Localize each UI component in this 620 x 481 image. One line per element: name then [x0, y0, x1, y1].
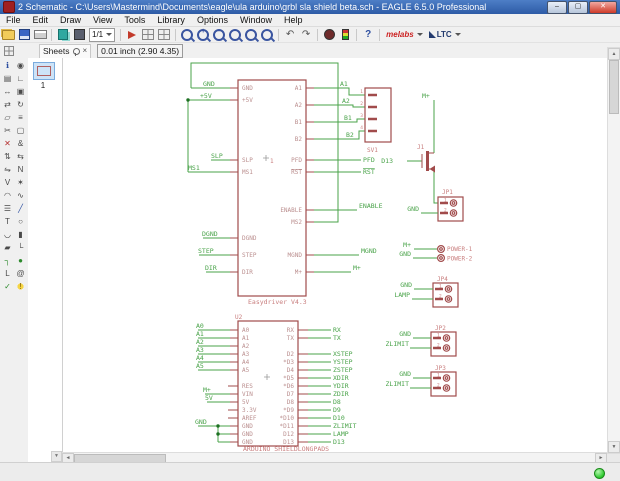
replace-tool[interactable]: ⇆ [14, 150, 27, 163]
net-label: A2 [196, 338, 204, 346]
maximize-button[interactable]: ▢ [568, 1, 588, 14]
net-label: D13 [333, 438, 345, 446]
jp4-connector[interactable]: GND LAMP JP4 1 2 [394, 276, 458, 307]
net-label: GND [407, 205, 419, 213]
pin-name: A1 [295, 85, 303, 92]
menu-library[interactable]: Library [151, 15, 191, 25]
eagle-icon [3, 1, 15, 13]
pin-name: D12 [283, 431, 294, 438]
undo-button[interactable]: ↶ [282, 28, 298, 42]
menu-edit[interactable]: Edit [27, 15, 55, 25]
net-label: GND [399, 330, 411, 338]
pin-name: *D11 [280, 423, 295, 430]
pin-name: SLP [242, 157, 253, 164]
pin-number: 1 [437, 373, 440, 379]
attribute-tool[interactable]: @ [14, 267, 27, 280]
title-bar: 2 Schematic - C:\Users\Mastermind\Docume… [0, 0, 620, 14]
connector-ref: JP1 [442, 189, 453, 196]
pin-number: 2 [439, 294, 442, 300]
mosfet-j1[interactable]: M+ J1 D13 [381, 92, 438, 203]
net-label: +5V [200, 92, 212, 100]
net-label: MGND [361, 247, 377, 255]
pin-name: A1 [242, 335, 250, 342]
script-button[interactable] [124, 28, 140, 42]
pin-name: GND [242, 85, 253, 92]
pin-number: 4 [360, 125, 363, 131]
net-label: A3 [196, 346, 204, 354]
pin-name: VIN [242, 391, 253, 398]
net-label: XDIR [333, 374, 349, 382]
net-label: A0 [196, 322, 204, 330]
net-label: ZLIMIT [333, 422, 357, 430]
status-indicator [594, 468, 605, 479]
invoke-tool[interactable]: ☰ [1, 202, 14, 215]
pin-name: D8 [287, 399, 295, 406]
easydriver-value: Easydriver V4.3 [248, 298, 307, 306]
net-label: YSTEP [333, 358, 353, 366]
melabs-logo: melabs [386, 30, 414, 39]
net-label: A2 [342, 97, 350, 105]
ltc-menu[interactable]: LTC [429, 30, 461, 39]
net-tool[interactable]: ┐ [1, 254, 14, 267]
mark-display-button[interactable] [1, 44, 17, 58]
circle-tool[interactable]: ○ [14, 215, 27, 228]
pin-name: B2 [295, 136, 303, 143]
net-label: GND [399, 250, 411, 258]
net-label: A1 [196, 330, 204, 338]
net-label: DGND [202, 230, 218, 238]
net-label: 5V [205, 394, 213, 402]
menu-options[interactable]: Options [191, 15, 234, 25]
pin-name: GND [242, 423, 253, 430]
pin-name: DGND [242, 235, 257, 242]
mark-tool[interactable]: ∟ [14, 72, 27, 85]
group-tool[interactable]: ▱ [1, 111, 14, 124]
ltc-logo: LTC [437, 30, 452, 39]
connector-ref: JP3 [435, 365, 446, 372]
stop-icon [324, 29, 335, 40]
net-label: GND [195, 418, 207, 426]
menu-view[interactable]: View [87, 15, 118, 25]
zoom-in-button[interactable]: + [195, 28, 211, 42]
cam-icon [74, 29, 85, 40]
info-tool[interactable]: ℹ [1, 59, 14, 72]
arduino-value: ARDUINO_SHIELDLONGPADS [243, 445, 329, 452]
pin-name: TX [287, 335, 295, 342]
net-label: ZLIMIT [386, 340, 410, 348]
transistor-ref: J1 [417, 144, 425, 151]
net-label: RX [333, 326, 341, 334]
menu-file[interactable]: File [0, 15, 27, 25]
pin-number: 2 [437, 343, 440, 349]
menu-draw[interactable]: Draw [54, 15, 87, 25]
change-tool[interactable]: ≡ [14, 111, 27, 124]
jp1-connector[interactable]: GND JP1 1 2 [407, 189, 463, 221]
zoom-select-icon [245, 29, 257, 41]
flag-icon [128, 31, 136, 39]
pin-number: 2 [444, 208, 447, 214]
sv1-connector[interactable]: 1 2 3 4 SV1 [360, 88, 391, 154]
help-button[interactable]: ? [360, 28, 376, 42]
junction-tool[interactable]: ● [14, 254, 27, 267]
menu-tools[interactable]: Tools [118, 15, 151, 25]
pin-name: D2 [287, 351, 295, 358]
pin-name: B1 [295, 119, 303, 126]
connector-ref: SV1 [367, 147, 378, 154]
net-label: M+ [403, 241, 411, 249]
net-label: M+ [422, 92, 430, 100]
value-tool[interactable]: V [1, 176, 14, 189]
zoom-redraw-icon [229, 29, 241, 41]
component-ref: U2 [235, 314, 243, 321]
pin-name: *D9 [283, 407, 294, 414]
pin-name: D4 [287, 367, 295, 374]
vertical-scrollbar[interactable]: ▲ ▼ [607, 47, 620, 454]
easydriver-marker: 1 [270, 158, 274, 165]
pin-name: MS1 [242, 169, 253, 176]
pin-name: RX [287, 327, 295, 334]
easydriver-component[interactable]: 1 GND +5V SLP MS1 DGND STEP DIR A1 A2 B1… [230, 80, 314, 306]
scroll-down-arrow[interactable]: ▼ [608, 441, 620, 453]
net-label: D8 [333, 398, 341, 406]
smash-tool[interactable]: ✶ [14, 176, 27, 189]
pin-number: 1 [437, 333, 440, 339]
pin-number: 1 [439, 284, 442, 290]
pin-name: MGND [288, 252, 303, 259]
name-tool[interactable]: N [14, 163, 27, 176]
text-tool[interactable]: T [1, 215, 14, 228]
net-label: A4 [196, 354, 204, 362]
net-label: A1 [340, 80, 348, 88]
net-label: A5 [196, 362, 204, 370]
pin-name: A2 [242, 343, 250, 350]
floppy-icon [19, 29, 30, 40]
net-label: ZDIR [333, 390, 349, 398]
coordinate-display: 0.01 inch (2.90 4.35) [97, 44, 183, 58]
pin-number: 1 [444, 198, 447, 204]
pinswap-tool[interactable]: ⇅ [1, 150, 14, 163]
small-grid-icon [4, 46, 14, 56]
cut-tool[interactable]: ✂ [1, 124, 14, 137]
power-connector[interactable]: M+ GND POWER-1 POWER-2 [399, 241, 472, 263]
wire-tool[interactable]: ╱ [14, 202, 27, 215]
rect-tool[interactable]: ▮ [14, 228, 27, 241]
scroll-up-arrow[interactable]: ▲ [608, 48, 620, 60]
pin-name: 3.3V [242, 407, 257, 414]
net-label: STEP [198, 247, 214, 255]
pin-name: AREF [242, 415, 257, 422]
connector-ref: JP4 [437, 276, 448, 283]
connector-ref: JP2 [435, 325, 446, 332]
add-tool[interactable]: & [14, 137, 27, 150]
pin-name: RST [291, 169, 302, 176]
net-label: LAMP [333, 430, 349, 438]
board-sheets-icon [58, 29, 68, 40]
pin-name: STEP [242, 252, 257, 259]
net-label: M+ [353, 264, 361, 272]
pin-name: MS2 [291, 219, 302, 226]
net-label: LAMP [394, 291, 410, 299]
schematic-canvas[interactable]: 1 GND +5V SLP MS1 DGND STEP DIR A1 A2 B1… [62, 58, 608, 452]
zoom-last-icon [261, 29, 273, 41]
pin-name: D7 [287, 391, 295, 398]
jp2-connector[interactable]: GND ZLIMIT JP2 1 2 [386, 325, 456, 356]
layers-icon [158, 29, 170, 40]
sheets-panel: 1 ▼ [28, 58, 63, 462]
net-label: D9 [333, 406, 341, 414]
window-title: 2 Schematic - C:\Users\Mastermind\Docume… [18, 2, 543, 12]
miter-tool[interactable]: ◠ [1, 189, 14, 202]
pin-name: A2 [295, 102, 303, 109]
errors-tool[interactable]: ! [14, 280, 27, 293]
net-label: XSTEP [333, 350, 353, 358]
zoom-in-icon: + [197, 29, 209, 41]
open-button[interactable] [0, 28, 16, 42]
show-tool[interactable]: ◉ [14, 59, 27, 72]
grid-button[interactable] [140, 28, 156, 42]
move-tool[interactable]: ↔ [1, 85, 14, 98]
pin-name: *D3 [283, 359, 294, 366]
display-tool[interactable]: ▤ [1, 72, 14, 85]
net-label: ZLIMIT [386, 380, 410, 388]
erc-tool[interactable]: ✓ [1, 280, 14, 293]
net-label: YDIR [333, 382, 349, 390]
net-label: GND [203, 80, 215, 88]
pad-label: POWER-2 [447, 256, 473, 263]
layers-button[interactable] [156, 28, 172, 42]
pin-name: GND [242, 431, 253, 438]
net-label: B2 [346, 131, 354, 139]
mirror-tool[interactable]: ⇄ [1, 98, 14, 111]
net-label: PFD [363, 156, 375, 164]
net-label: RST [363, 168, 375, 176]
bus-tool[interactable]: └ [14, 241, 27, 254]
easydriver-nets[interactable]: GND +5V SLP MS1 DGND STEP DIR A1 A2 B1 B… [186, 63, 382, 272]
sheet-thumbnail[interactable] [33, 62, 55, 80]
traffic-light-icon [342, 29, 349, 40]
paste-tool[interactable]: ▢ [14, 124, 27, 137]
panel-scroll-arrow[interactable]: ▼ [51, 451, 62, 462]
net-label: DIR [205, 264, 217, 272]
switch-to-board-button[interactable] [55, 28, 71, 42]
pin-name: *D6 [283, 383, 294, 390]
zoom-last-button[interactable] [259, 28, 275, 42]
sheet-number: 1 [28, 81, 58, 90]
pin-name: *D5 [283, 375, 294, 382]
gateswap-tool[interactable]: ⇋ [1, 163, 14, 176]
stop-button[interactable] [321, 28, 337, 42]
rotate-tool[interactable]: ↻ [14, 98, 27, 111]
pin-name: A0 [242, 327, 250, 334]
chevron-down-icon [417, 33, 423, 36]
pin-name: A4 [242, 359, 250, 366]
arc-tool[interactable]: ◡ [1, 228, 14, 241]
copy-tool[interactable]: ▣ [14, 85, 27, 98]
delete-tool[interactable]: ✕ [1, 137, 14, 150]
pin-name: +5V [242, 97, 253, 104]
jp3-connector[interactable]: GND ZLIMIT JP3 1 2 [386, 365, 456, 396]
pin-name: RES [242, 383, 253, 390]
pin-number: 2 [360, 101, 363, 107]
pin-icon[interactable] [72, 48, 79, 55]
zoom-fit-button[interactable] [179, 28, 195, 42]
melabs-menu[interactable]: melabs [386, 30, 423, 39]
pin-number: 3 [360, 113, 363, 119]
main-toolbar: 1/1 + – ↶ ↷ ? melabs LTC [0, 27, 620, 43]
grid-icon [142, 29, 154, 40]
net-label: MS1 [188, 164, 200, 172]
printer-icon [34, 30, 47, 39]
menu-help[interactable]: Help [278, 15, 309, 25]
net-label: ZSTEP [333, 366, 353, 374]
sheet-selector[interactable]: 1/1 [89, 28, 115, 42]
label-tool[interactable]: L [1, 267, 14, 280]
net-label: M+ [203, 386, 211, 394]
status-bar [0, 462, 620, 481]
command-palette: ℹ ◉ ▤ ∟ ↔ ▣ ⇄ ↻ ▱ ≡ ✂ ▢ ✕ & ⇅ ⇆ ⇋ N V ✶ … [0, 58, 29, 463]
vertical-scroll-thumb[interactable] [609, 60, 619, 114]
cam-processor-button[interactable] [71, 28, 87, 42]
net-label: D10 [333, 414, 345, 422]
net-label: GND [400, 281, 412, 289]
net-label: TX [333, 334, 341, 342]
split-tool[interactable]: ∿ [14, 189, 27, 202]
pin-number: 2 [437, 383, 440, 389]
zoom-fit-icon [181, 29, 193, 41]
pad-label: POWER-1 [447, 246, 473, 253]
close-button[interactable]: ✕ [589, 1, 617, 14]
print-button[interactable] [32, 28, 48, 42]
sheets-tab-label: Sheets [43, 46, 69, 56]
pin-name: ENABLE [280, 207, 302, 214]
pin-number: 1 [360, 89, 363, 95]
ltc-triangle-icon [429, 31, 436, 38]
pin-name: PFD [291, 157, 302, 164]
menu-bar: File Edit Draw View Tools Library Option… [0, 14, 620, 27]
polygon-tool[interactable]: ▰ [1, 241, 14, 254]
pin-name: A5 [242, 367, 250, 374]
parameter-bar: Sheets × 0.01 inch (2.90 4.35) [0, 43, 620, 59]
sheets-panel-tab[interactable]: Sheets × [39, 44, 91, 58]
pin-name: DIR [242, 269, 253, 276]
chevron-down-icon [455, 33, 461, 36]
net-label: B1 [344, 114, 352, 122]
zoom-redraw-button[interactable] [227, 28, 243, 42]
pin-name: *D10 [280, 415, 295, 422]
arduino-shield-component[interactable]: U2 A0 A1 A2 A3 A4 A5 RES VIN 5V 3.3V ARE… [228, 314, 329, 452]
net-label: ENABLE [359, 202, 383, 210]
chevron-down-icon [106, 33, 112, 36]
arduino-nets[interactable]: A0 A1 A2 A3 A4 A5 M+ 5V GND RX TX XSTEP … [195, 322, 357, 446]
pin-name: 5V [242, 399, 250, 406]
net-label: SLP [211, 152, 223, 160]
redo-button[interactable]: ↷ [298, 28, 314, 42]
menu-window[interactable]: Window [234, 15, 278, 25]
zoom-select-button[interactable] [243, 28, 259, 42]
net-label: D13 [381, 157, 393, 165]
minimize-button[interactable]: – [547, 1, 567, 14]
zoom-out-button[interactable]: – [211, 28, 227, 42]
go-button[interactable] [337, 28, 353, 42]
zoom-out-icon: – [213, 29, 225, 41]
close-panel-icon[interactable]: × [82, 47, 87, 55]
pin-name: M+ [295, 269, 303, 276]
sheet-selector-value: 1/1 [92, 30, 103, 39]
net-label: GND [399, 370, 411, 378]
pin-name: A3 [242, 351, 250, 358]
save-button[interactable] [16, 28, 32, 42]
folder-icon [2, 30, 15, 40]
